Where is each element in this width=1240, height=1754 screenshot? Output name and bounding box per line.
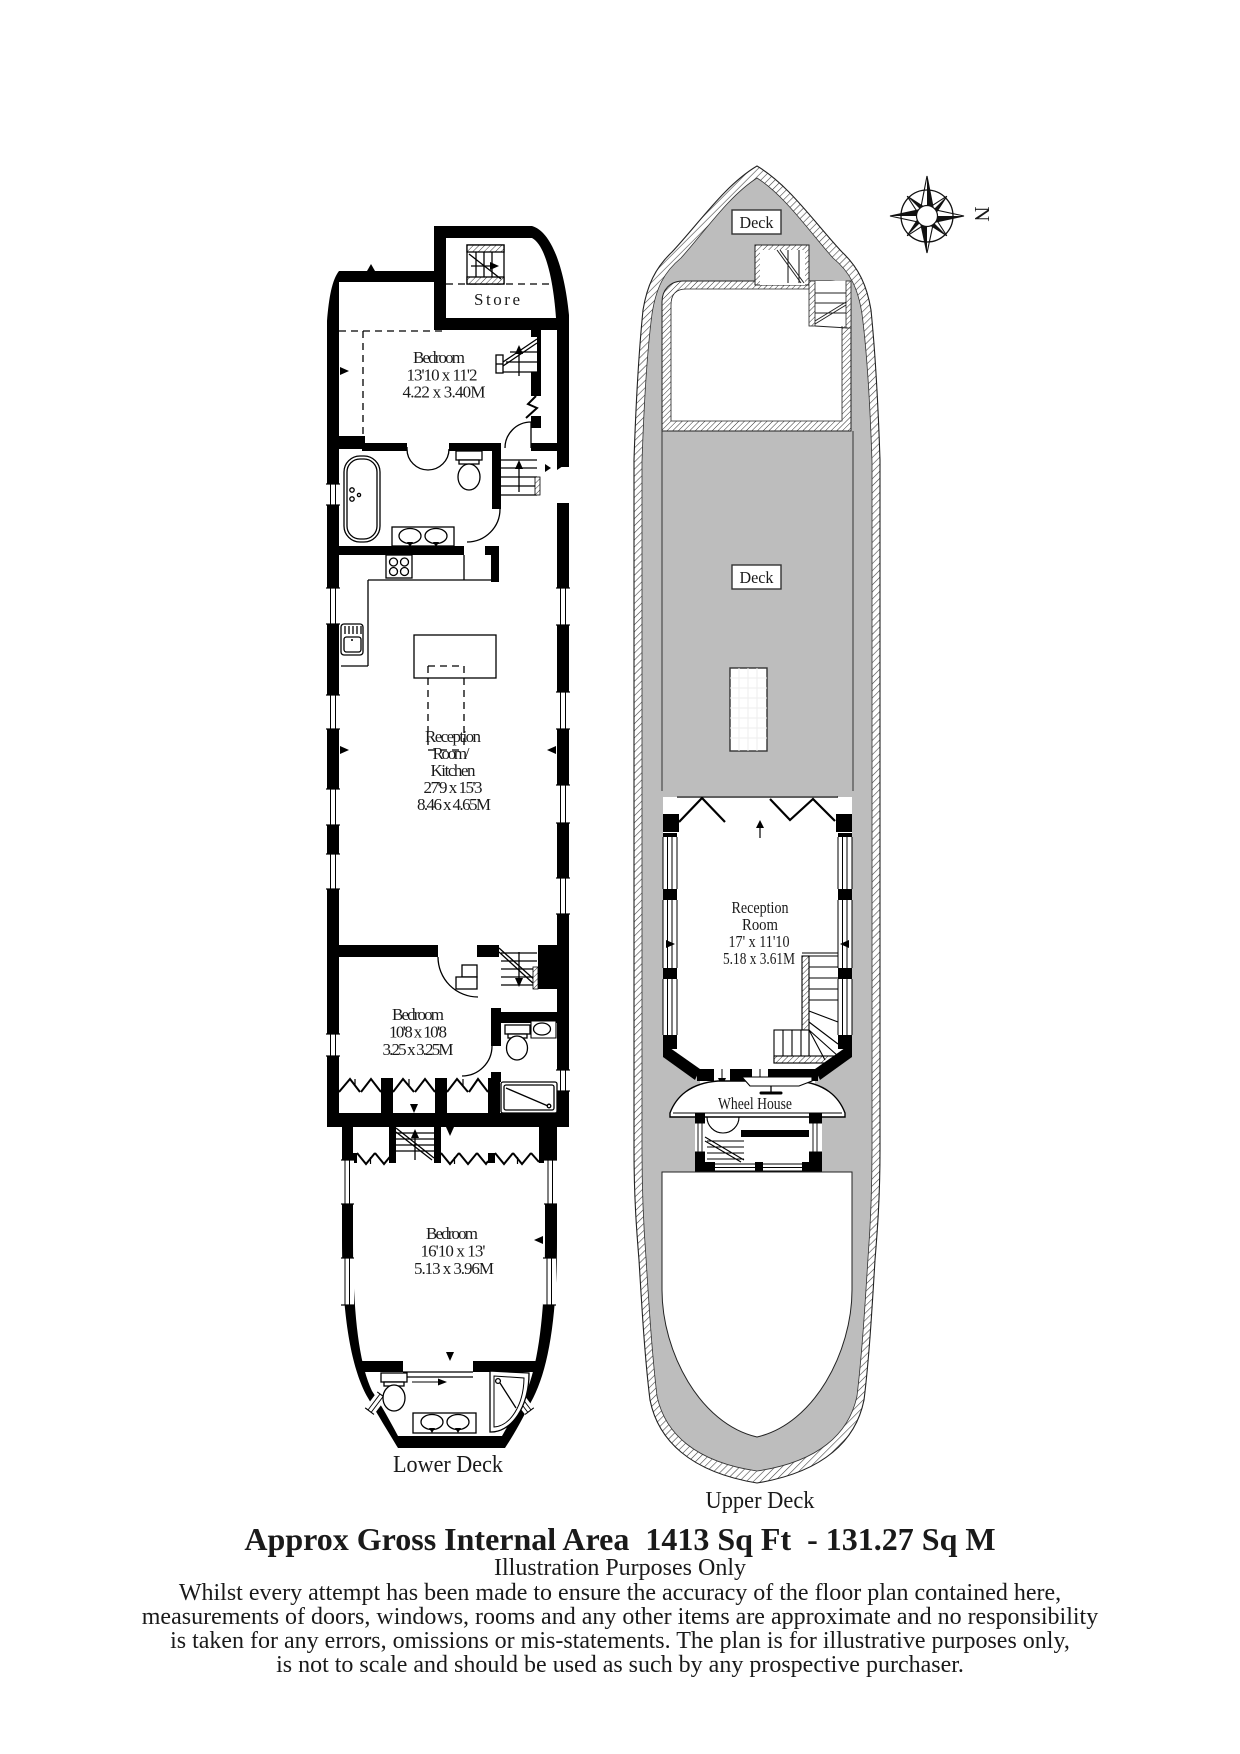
- svg-text:16'10 x 13': 16'10 x 13': [421, 1242, 486, 1261]
- svg-text:8.46 x 4.65M: 8.46 x 4.65M: [417, 795, 491, 814]
- svg-text:Deck: Deck: [740, 213, 774, 232]
- svg-text:N: N: [970, 206, 994, 221]
- svg-text:5.13 x 3.96M: 5.13 x 3.96M: [414, 1259, 494, 1278]
- svg-text:10'8 x 10'8: 10'8 x 10'8: [389, 1023, 447, 1042]
- svg-text:Approx Gross Internal Area 14: Approx Gross Internal Area 1413 Sq Ft - …: [244, 1521, 995, 1557]
- svg-text:Bedroom: Bedroom: [392, 1005, 444, 1024]
- svg-text:3.25 x 3.25M: 3.25 x 3.25M: [383, 1040, 454, 1059]
- svg-text:5.18 x 3.61M: 5.18 x 3.61M: [723, 949, 795, 968]
- svg-text:is taken for any errors, omiss: is taken for any errors, omissions or mi…: [170, 1628, 1070, 1654]
- svg-text:4.22 x 3.40M: 4.22 x 3.40M: [403, 383, 486, 402]
- svg-text:is not to scale and should be: is not to scale and should be used as su…: [276, 1652, 964, 1678]
- svg-text:Bedroom: Bedroom: [426, 1224, 478, 1243]
- svg-text:Lower Deck: Lower Deck: [393, 1452, 503, 1478]
- svg-text:Upper Deck: Upper Deck: [706, 1488, 815, 1514]
- svg-text:Wheel House: Wheel House: [718, 1094, 792, 1113]
- svg-text:Deck: Deck: [740, 568, 774, 587]
- svg-text:Illustration Purposes Only: Illustration Purposes Only: [494, 1555, 746, 1581]
- svg-text:measurements of doors, windows: measurements of doors, windows, rooms an…: [142, 1604, 1098, 1630]
- svg-text:Store: Store: [474, 290, 520, 309]
- svg-text:Bedroom: Bedroom: [413, 348, 465, 367]
- svg-text:Whilst every attempt has been: Whilst every attempt has been made to en…: [179, 1580, 1061, 1606]
